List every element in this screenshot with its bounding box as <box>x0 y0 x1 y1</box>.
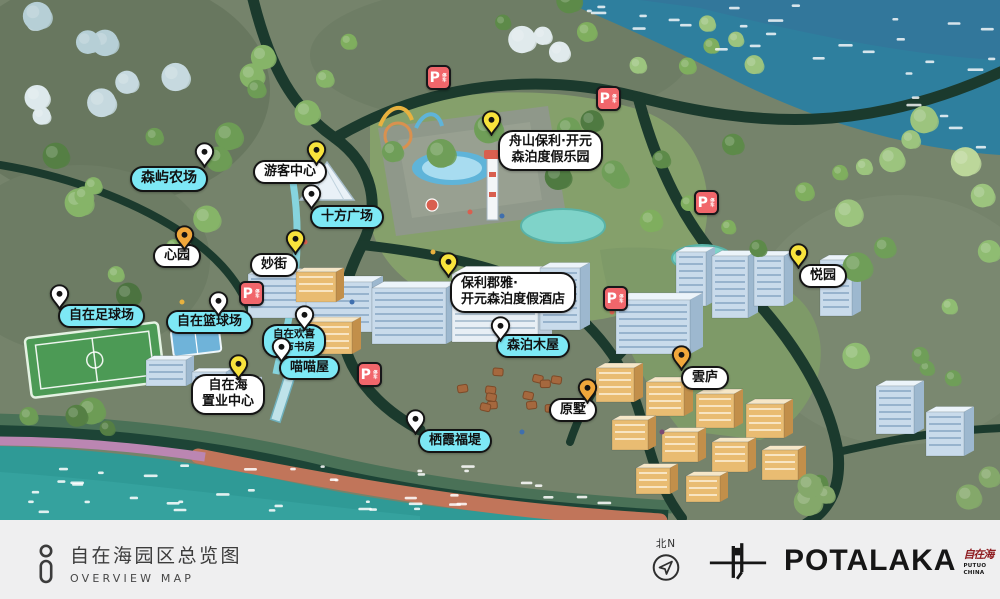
compass-icon <box>651 552 681 582</box>
poi-label-poly-junya-hotel[interactable]: 保利郡雅·开元森泊度假酒店 <box>450 272 576 313</box>
poi-layer: 森屿农场游客中心十方广场心园妙街舟山保利·开元森泊度假乐园保利郡雅·开元森泊度假… <box>0 0 1000 520</box>
map-legend-icon <box>36 543 56 589</box>
map-title-group: 自在海园区总览图 OVERVIEW MAP <box>36 541 242 589</box>
overview-map-screen: 森屿农场游客中心十方广场心园妙街舟山保利·开元森泊度假乐园保利郡雅·开元森泊度假… <box>0 0 1000 599</box>
football-field-pin-icon <box>49 284 70 310</box>
poi-label-football-field[interactable]: 自在足球场 <box>58 304 145 328</box>
parking-icon-3[interactable]: P停车 <box>694 190 719 215</box>
brand-seal-sub1: PUTUO <box>963 563 986 569</box>
brand: POTALAKA 自在海 PUTUO CHINA <box>708 540 993 582</box>
yueyuan-pin-icon <box>788 243 809 269</box>
brand-mark-icon <box>708 540 768 582</box>
parking-icon-1[interactable]: P停车 <box>426 65 451 90</box>
brand-seal-sub2: CHINA <box>963 570 986 576</box>
parking-icon-5[interactable]: P停车 <box>603 286 628 311</box>
page-title: 自在海园区总览图 <box>70 541 242 568</box>
page-subtitle: OVERVIEW MAP <box>70 572 242 585</box>
poly-junya-hotel-pin-icon <box>438 252 459 278</box>
zhiye-center-pin-icon <box>228 354 249 380</box>
miaojie-pin-icon <box>285 229 306 255</box>
parking-icon-6[interactable]: P停车 <box>357 362 382 387</box>
zhoushan-poly-resort-pin-icon <box>481 110 502 136</box>
footer-bar: 自在海园区总览图 OVERVIEW MAP 北N POTALAKA 自在海 <box>0 520 1000 599</box>
shifang-plaza-pin-icon <box>301 184 322 210</box>
miaomiao-house-pin-icon <box>271 337 292 363</box>
senpo-cabins-pin-icon <box>490 316 511 342</box>
poi-label-senyu-farm[interactable]: 森屿农场 <box>130 166 208 192</box>
yuanshu-pin-icon <box>577 378 598 404</box>
brand-seal-calligraphy: 自在海 <box>963 546 993 562</box>
compass: 北N <box>644 536 688 586</box>
brand-name: POTALAKA <box>784 544 956 578</box>
parking-icon-2[interactable]: P停车 <box>596 86 621 111</box>
parking-icon-4[interactable]: P停车 <box>239 281 264 306</box>
city-study-pin-icon <box>294 305 315 331</box>
poi-label-miaojie[interactable]: 妙街 <box>250 253 298 277</box>
poi-label-zhoushan-poly-resort[interactable]: 舟山保利·开元森泊度假乐园 <box>498 130 603 171</box>
qixia-causeway-pin-icon <box>405 409 426 435</box>
map-illustration[interactable]: 森屿农场游客中心十方广场心园妙街舟山保利·开元森泊度假乐园保利郡雅·开元森泊度假… <box>0 0 1000 520</box>
compass-label: 北N <box>644 536 688 551</box>
basketball-court-pin-icon <box>208 291 229 317</box>
senyu-farm-pin-icon <box>194 142 215 168</box>
yunlu-pin-icon <box>671 345 692 371</box>
xinyuan-pin-icon <box>174 225 195 251</box>
poi-label-zhiye-center[interactable]: 自在海置业中心 <box>191 374 265 415</box>
brand-seal: 自在海 PUTUO CHINA <box>963 546 993 576</box>
visitor-center-pin-icon <box>306 140 327 166</box>
poi-label-qixia-causeway[interactable]: 栖霞福堤 <box>418 429 492 453</box>
